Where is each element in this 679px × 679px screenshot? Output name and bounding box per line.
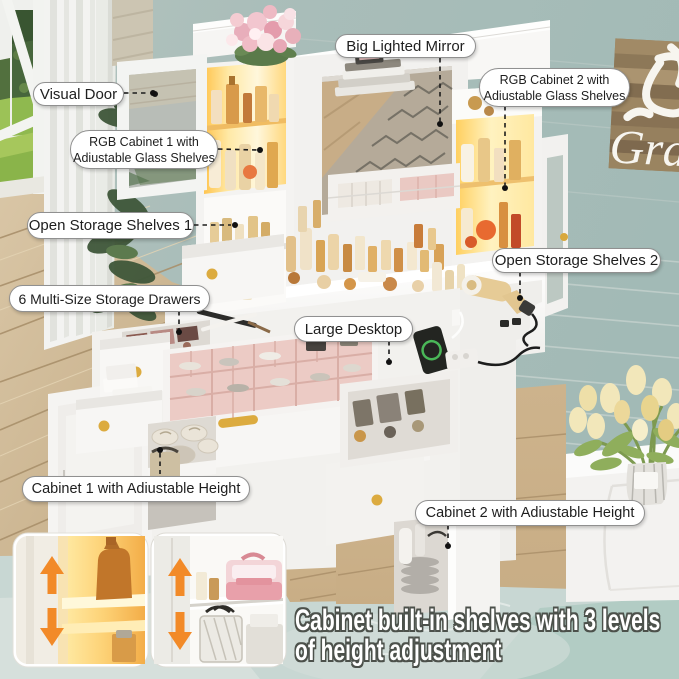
svg-text:Gra: Gra — [608, 120, 679, 177]
